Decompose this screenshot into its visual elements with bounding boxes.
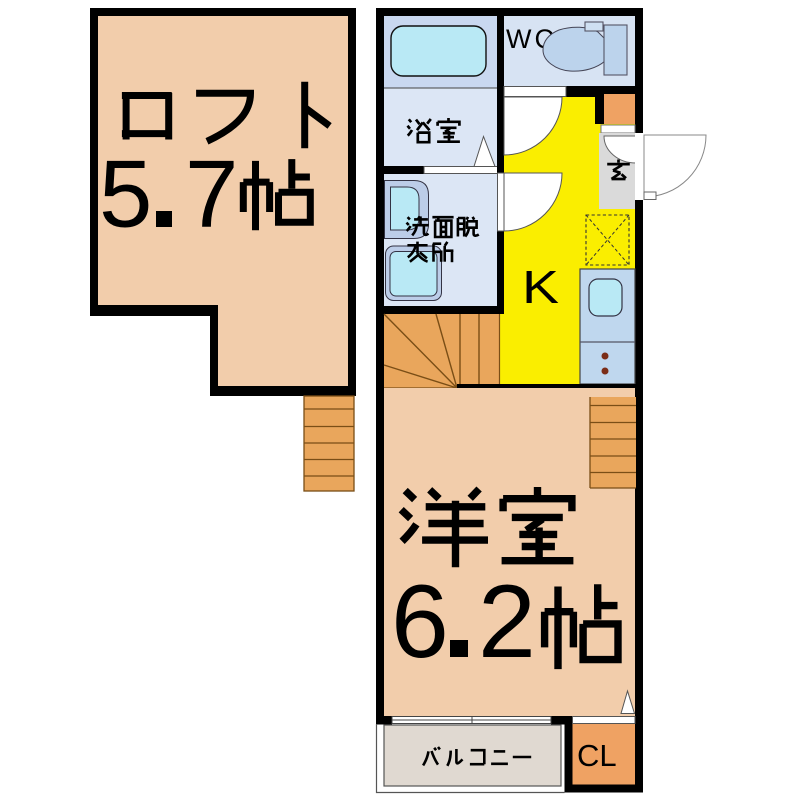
svg-text:6: 6 — [391, 564, 449, 680]
svg-text:CL: CL — [577, 738, 617, 773]
svg-text:5: 5 — [99, 141, 152, 248]
svg-text:K: K — [522, 261, 559, 313]
svg-text:7: 7 — [185, 141, 238, 248]
svg-text:2: 2 — [478, 564, 536, 680]
